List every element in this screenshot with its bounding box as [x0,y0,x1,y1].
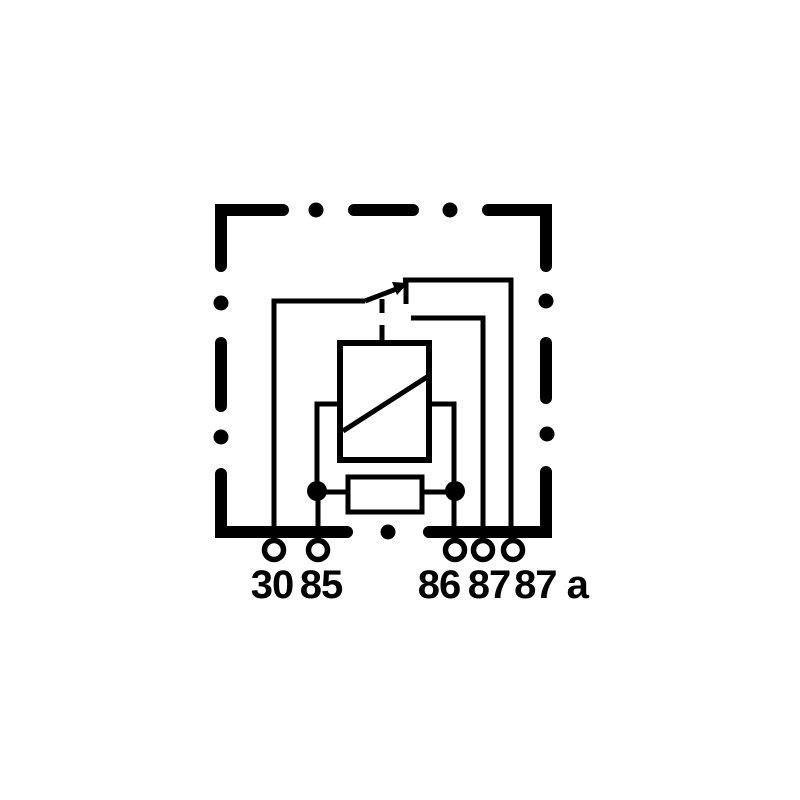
terminal-label-86: 86 [418,563,461,607]
terminal-pins [265,541,523,560]
housing-dot [539,294,554,309]
relay-schematic-canvas: 30 85 86 87 87 a [0,0,800,800]
terminal-pin-30 [265,541,284,560]
housing-dot [381,525,396,540]
housing-dot [214,430,229,445]
housing-corner-bottom-left [221,474,347,532]
terminal-pin-86 [446,541,465,560]
terminal-label-87a: 87 a [514,563,590,607]
housing-dot [540,427,555,442]
terminal-pin-85 [309,541,328,560]
terminal-label-85: 85 [300,563,343,607]
resistor-box [348,477,422,512]
housing-dot [214,296,229,311]
relay-wiring-diagram: 30 85 86 87 87 a [0,0,800,800]
housing-dot [443,203,458,218]
relay-circuit [274,280,511,540]
housing-corner-bottom-right [429,472,546,532]
housing-corner-top-right [488,210,546,266]
terminal-labels: 30 85 86 87 87 a [251,563,590,607]
coil-bracket-right [429,404,454,491]
junction-dot-86 [445,481,465,501]
housing-dot [309,203,324,218]
coil-bracket-left [317,404,340,491]
junction-dot-85 [307,481,327,501]
housing-corner-top-left [221,210,283,266]
terminal-label-30: 30 [251,563,294,607]
terminal-pin-87 [474,541,493,560]
terminal-pin-87a [504,541,523,560]
terminal-label-87: 87 [468,563,511,607]
